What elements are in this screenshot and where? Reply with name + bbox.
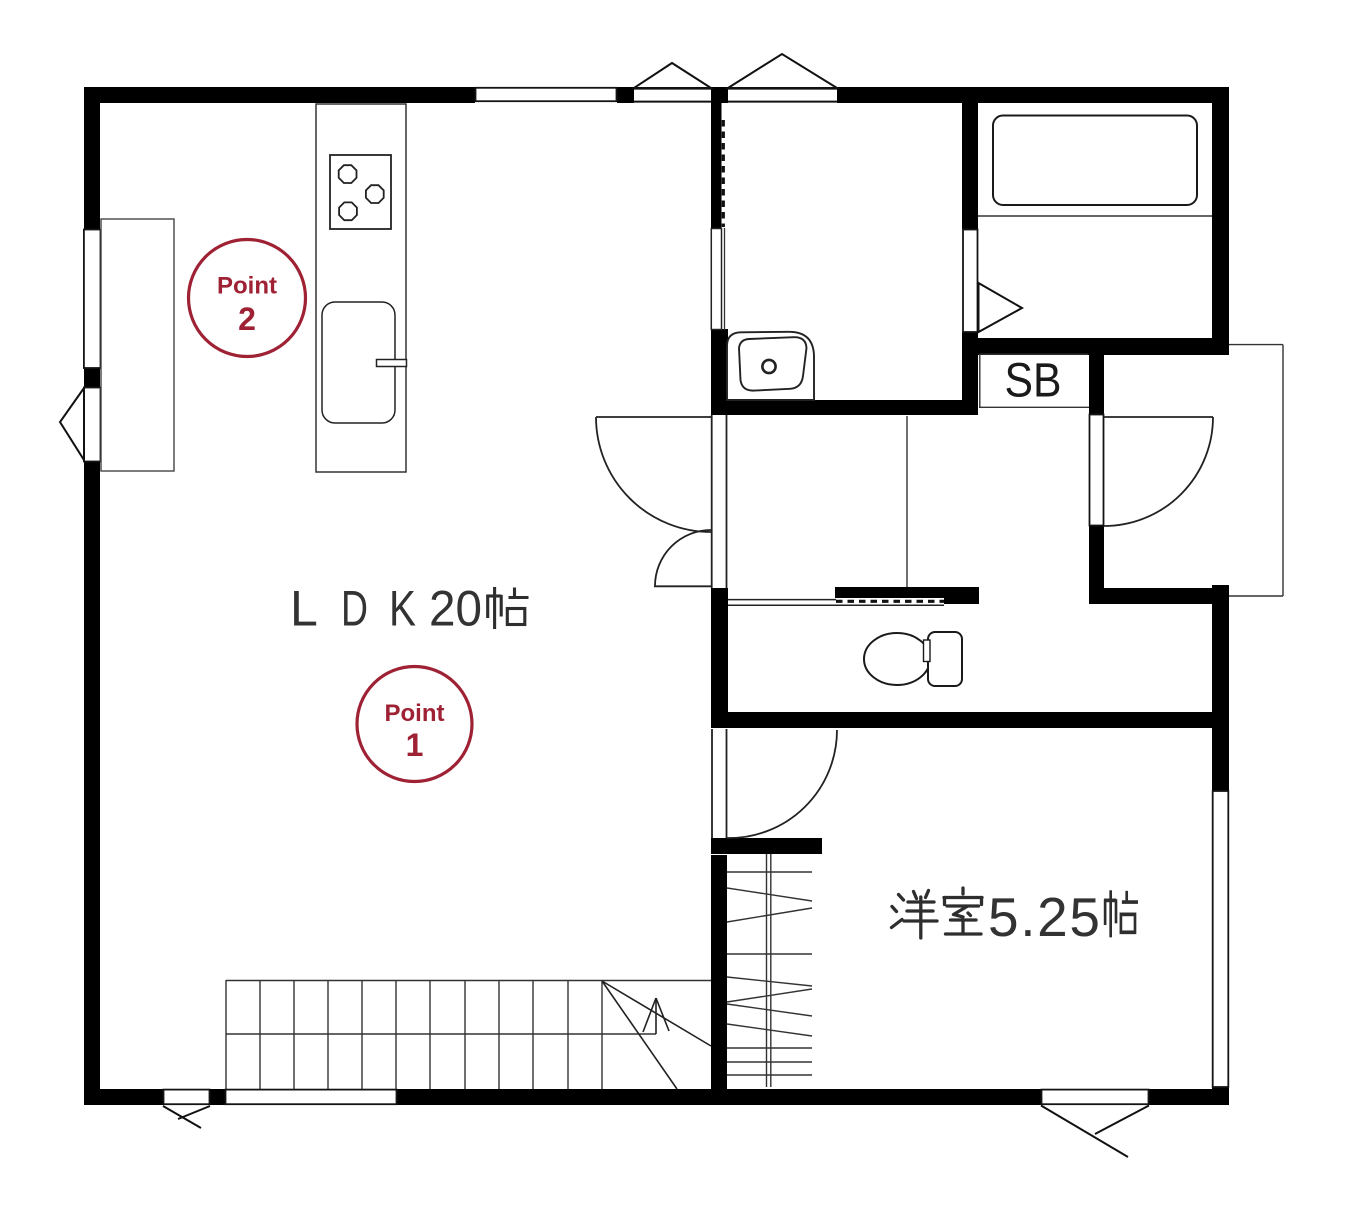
- svg-text:Point: Point: [385, 700, 445, 727]
- svg-text:D: D: [341, 581, 368, 637]
- svg-text:5.25: 5.25: [988, 886, 1100, 948]
- svg-text:L: L: [290, 581, 318, 637]
- svg-text:SB: SB: [1005, 355, 1062, 408]
- svg-text:Point: Point: [217, 273, 277, 300]
- svg-text:1: 1: [406, 727, 424, 763]
- svg-text:K: K: [389, 581, 416, 637]
- svg-text:2: 2: [238, 301, 256, 337]
- svg-text:20: 20: [429, 581, 482, 637]
